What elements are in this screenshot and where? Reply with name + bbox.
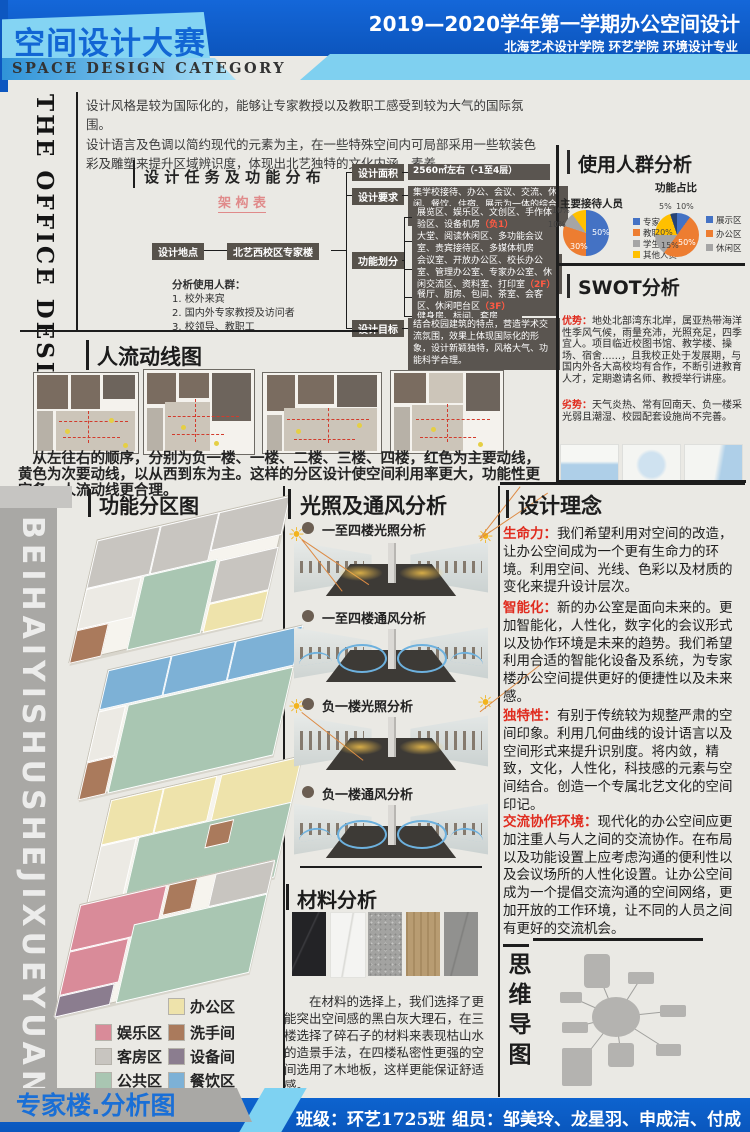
swot-bar	[567, 274, 570, 298]
pie2-value: 15%	[661, 241, 679, 250]
light-item-label: 一至四楼光照分析	[322, 520, 426, 539]
map-thumbnail	[560, 444, 619, 482]
task-location-value: 北艺西校区专家楼	[227, 243, 319, 260]
task-area-value: 2560㎡左右（-1至4层）	[408, 164, 550, 180]
concept-title: 设计理念	[518, 490, 602, 520]
users-panel-bar	[567, 150, 570, 174]
watermark-text: BEIHAIYISHUSHEJIXUEYUAN	[15, 516, 50, 1094]
material-swatch-gray-marble	[444, 912, 478, 976]
fc-line	[404, 217, 412, 218]
task-goal-text: 结合校园建筑的特点，营造学术交流氛围，效果上体现国际化的形象，设计新颖独特，风格…	[413, 320, 548, 366]
floor-plan-b1	[33, 372, 139, 454]
users-analysis-item: 1. 校外来宾	[172, 293, 295, 307]
concept-item-collaboration: 交流协作环境：现代化的办公空间应更加注重人与人之间的交流协作。在布局以及功能设置…	[503, 814, 745, 939]
material-swatch-wood	[406, 912, 440, 976]
floor-plan-3f	[390, 370, 504, 454]
legend-swatch	[95, 1048, 112, 1065]
map-thumbnail	[622, 444, 681, 482]
materials-title: 材料分析	[297, 884, 377, 913]
vent-diagram-b1	[294, 800, 488, 858]
task-goal-label: 设计目标	[352, 320, 404, 337]
map-thumbnail	[684, 444, 743, 482]
task-require-label: 设计要求	[352, 188, 404, 205]
users-analysis-title: 分析使用人群：	[172, 278, 295, 293]
pie2-legend-swatch	[706, 216, 713, 223]
intro-left-rule	[76, 92, 78, 330]
concept-item-vitality: 生命力：我们希望利用对空间的改造，让办公空间成为一个更有生命力的环境。利用空间、…	[503, 526, 745, 597]
swot-weaknesses-label: 劣势：	[562, 400, 592, 411]
legend-swatch	[168, 998, 185, 1015]
fc-line	[402, 328, 408, 329]
fc-line	[404, 297, 412, 298]
legend-swatch	[95, 1024, 112, 1041]
footer-class: 班级：环艺1725班	[296, 1105, 445, 1130]
fc-line	[402, 195, 408, 196]
swot-strengths-label: 优势：	[562, 316, 592, 327]
swot-strengths: 优势：地处北部湾东北岸，属亚热带海洋性季风气候，雨量充沛，光照充足，四季宜人。项…	[562, 316, 744, 386]
zoning-caption: 专家楼.分析图	[16, 1086, 176, 1122]
pie2-legend-label: 休闲区	[716, 242, 742, 254]
pie2-value: 10%	[676, 202, 694, 211]
pie1-legend-swatch	[633, 218, 640, 225]
task-location-label: 设计地点	[152, 243, 204, 260]
footer-members: 组员：邹美玲、龙星羽、申成洁、付成军	[452, 1105, 750, 1132]
intro-paragraph: 设计风格是较为国际化的，能够让专家教授以及教职工感受到较为大气的国际氛围。 设计…	[86, 96, 548, 174]
users-analysis-item: 2. 国内外专家教授及访问者	[172, 307, 295, 321]
vent-diagram-1	[294, 624, 488, 682]
swot-top-rule	[557, 263, 745, 266]
material-swatch-black-marble	[292, 912, 326, 976]
swot-title: SWOT分析	[578, 273, 680, 300]
pie2-value: 20%	[655, 228, 673, 237]
fc-line	[331, 250, 346, 251]
concept-title-bar	[506, 490, 509, 518]
fc-line	[204, 250, 227, 251]
fc-line	[346, 328, 352, 329]
task-division-label: 功能划分	[352, 252, 404, 269]
header-right-accent	[300, 54, 750, 80]
right-panel-left-rule	[556, 145, 559, 483]
fc-line	[404, 316, 412, 317]
concept-label: 交流协作环境：	[503, 814, 598, 830]
task-goal-value: 结合校园建筑的特点，营造学术交流氛围，效果上体现国际化的形象，设计新颖独特，风格…	[408, 318, 560, 370]
tasks-title-bar	[133, 160, 135, 188]
pie2-value: 5%	[659, 202, 672, 211]
zoning-title-bar	[88, 489, 91, 517]
material-swatch-white-marble	[330, 912, 366, 978]
legend-label: 客房区	[117, 1046, 162, 1067]
mindmap-graph	[548, 942, 748, 1094]
light-bullet	[302, 610, 314, 622]
flow-caption: 从左往右的顺序，分别为负一楼、一楼、二楼、三楼、四楼，红色为主要动线，黄色为次要…	[18, 452, 546, 500]
tasks-title: 设 计 任 务 及 功 能 分 布	[144, 166, 321, 187]
intro-line1: 设计风格是较为国际化的，能够让专家教授以及教职工感受到较为大气的国际氛围。	[86, 98, 524, 132]
concept-text: 现代化的办公空间应更加注重人与人之间的交流协作。在布局以及功能设置上应考虑沟通的…	[503, 814, 733, 937]
fc-bracket	[404, 217, 405, 317]
task-area-text: 2560㎡左右（-1至4层）	[413, 166, 517, 176]
concept-label: 生命力：	[503, 526, 557, 542]
mindmap-title: 思维导图	[500, 952, 534, 1072]
pie1-legend-swatch	[633, 240, 640, 247]
concept-item-smart: 智能化：新的办公室是面向未来的。更加智能化，人性化，数字化的会议形式以及协作环境…	[503, 600, 745, 707]
light-diagram-1: ☀ ☀	[294, 538, 488, 596]
task-area-label: 设计面积	[352, 164, 404, 181]
tasks-bottom-rule	[20, 330, 378, 332]
pie2-legend-label: 办公区	[716, 228, 742, 240]
side-label: THE OFFICE DESIGN	[31, 94, 58, 330]
page-subtitle: SPACE DESIGN CATEGORY	[12, 60, 286, 77]
light-bullet	[302, 786, 314, 798]
materials-paragraph: 在材料的选择上，我们选择了更能突出空间感的黑白灰大理石，在三楼选择了碎石子的材料…	[284, 994, 496, 1095]
users-analysis: 分析使用人群： 1. 校外来宾 2. 国内外专家教授及访问者 3. 校领导、教职…	[172, 278, 295, 335]
fc-line	[346, 172, 352, 173]
light-title: 光照及通风分析	[300, 490, 447, 520]
users-panel-title: 使用人群分析	[578, 150, 692, 177]
legend-swatch	[168, 1048, 185, 1065]
pie1-legend-swatch	[633, 251, 640, 258]
pie1-value: 50%	[592, 228, 610, 237]
fc-line	[346, 195, 352, 196]
fc-line	[404, 269, 412, 270]
materials-top-rule	[300, 866, 482, 868]
tasks-subtitle: 架 构 表	[218, 192, 266, 213]
legend-label: 餐饮区	[190, 1070, 235, 1091]
legend-label: 洗手间	[190, 1022, 235, 1043]
pie2-value: 50%	[678, 238, 696, 247]
light-title-bar	[288, 489, 291, 519]
pie2-legend-swatch	[706, 230, 713, 237]
floor-plan-1f	[143, 369, 255, 455]
fc-line	[402, 172, 408, 173]
pie1-legend-swatch	[633, 229, 640, 236]
zoning-title: 功能分区图	[99, 490, 199, 519]
pie1-value: 10%	[552, 206, 570, 215]
swot-weaknesses: 劣势：天气炎热、常有回南天、负一楼采光弱且潮湿、校园配套设施尚不完善。	[562, 400, 744, 423]
pie1-value: 30%	[570, 242, 588, 251]
concept-label: 独特性：	[503, 708, 557, 724]
legend-label: 办公区	[190, 996, 235, 1017]
fc-line	[404, 241, 412, 242]
division-floor: （负1）	[480, 220, 513, 230]
concept-item-unique: 独特性：有别于传统较为规整严肃的空间印象。利用几何曲线的设计语言以及空间形式来提…	[503, 708, 745, 815]
legend-label: 设备间	[190, 1046, 235, 1067]
pie2-legend-swatch	[706, 244, 713, 251]
page-title: 空间设计大赛	[14, 18, 206, 63]
floor-plan-2f	[262, 372, 382, 454]
light-diagram-b1: ☀ ☀	[294, 712, 488, 770]
mindmap-top-rule	[533, 938, 703, 941]
header-school: 北海艺术设计学院 环艺学院 环境设计专业	[504, 36, 738, 55]
materials-title-bar	[286, 884, 289, 910]
flow-title-bar	[86, 340, 89, 370]
header-term: 2019—2020学年第一学期办公空间设计	[369, 8, 740, 37]
legend-label: 娱乐区	[117, 1022, 162, 1043]
legend-swatch	[168, 1024, 185, 1041]
mindmap-title-rule	[503, 944, 529, 947]
sidebar-top-strip	[0, 486, 72, 508]
flow-title: 人流动线图	[97, 341, 202, 371]
poster: 空间设计大赛 SPACE DESIGN CATEGORY 2019—2020学年…	[0, 0, 750, 1132]
material-swatch-terrazzo	[368, 912, 402, 976]
concept-label: 智能化：	[503, 600, 557, 616]
division-text: 大堂、阅读休闲区、多功能会议室、贵宾接待区、多媒体机房	[417, 232, 543, 254]
pie1-value: 10%	[548, 220, 566, 229]
users-analysis-item: 3. 校领导、教职工	[172, 321, 295, 335]
concept-top-rule	[500, 482, 745, 485]
pie2-legend-label: 展示区	[716, 214, 742, 226]
pie2-title: 功能占比	[655, 180, 697, 195]
